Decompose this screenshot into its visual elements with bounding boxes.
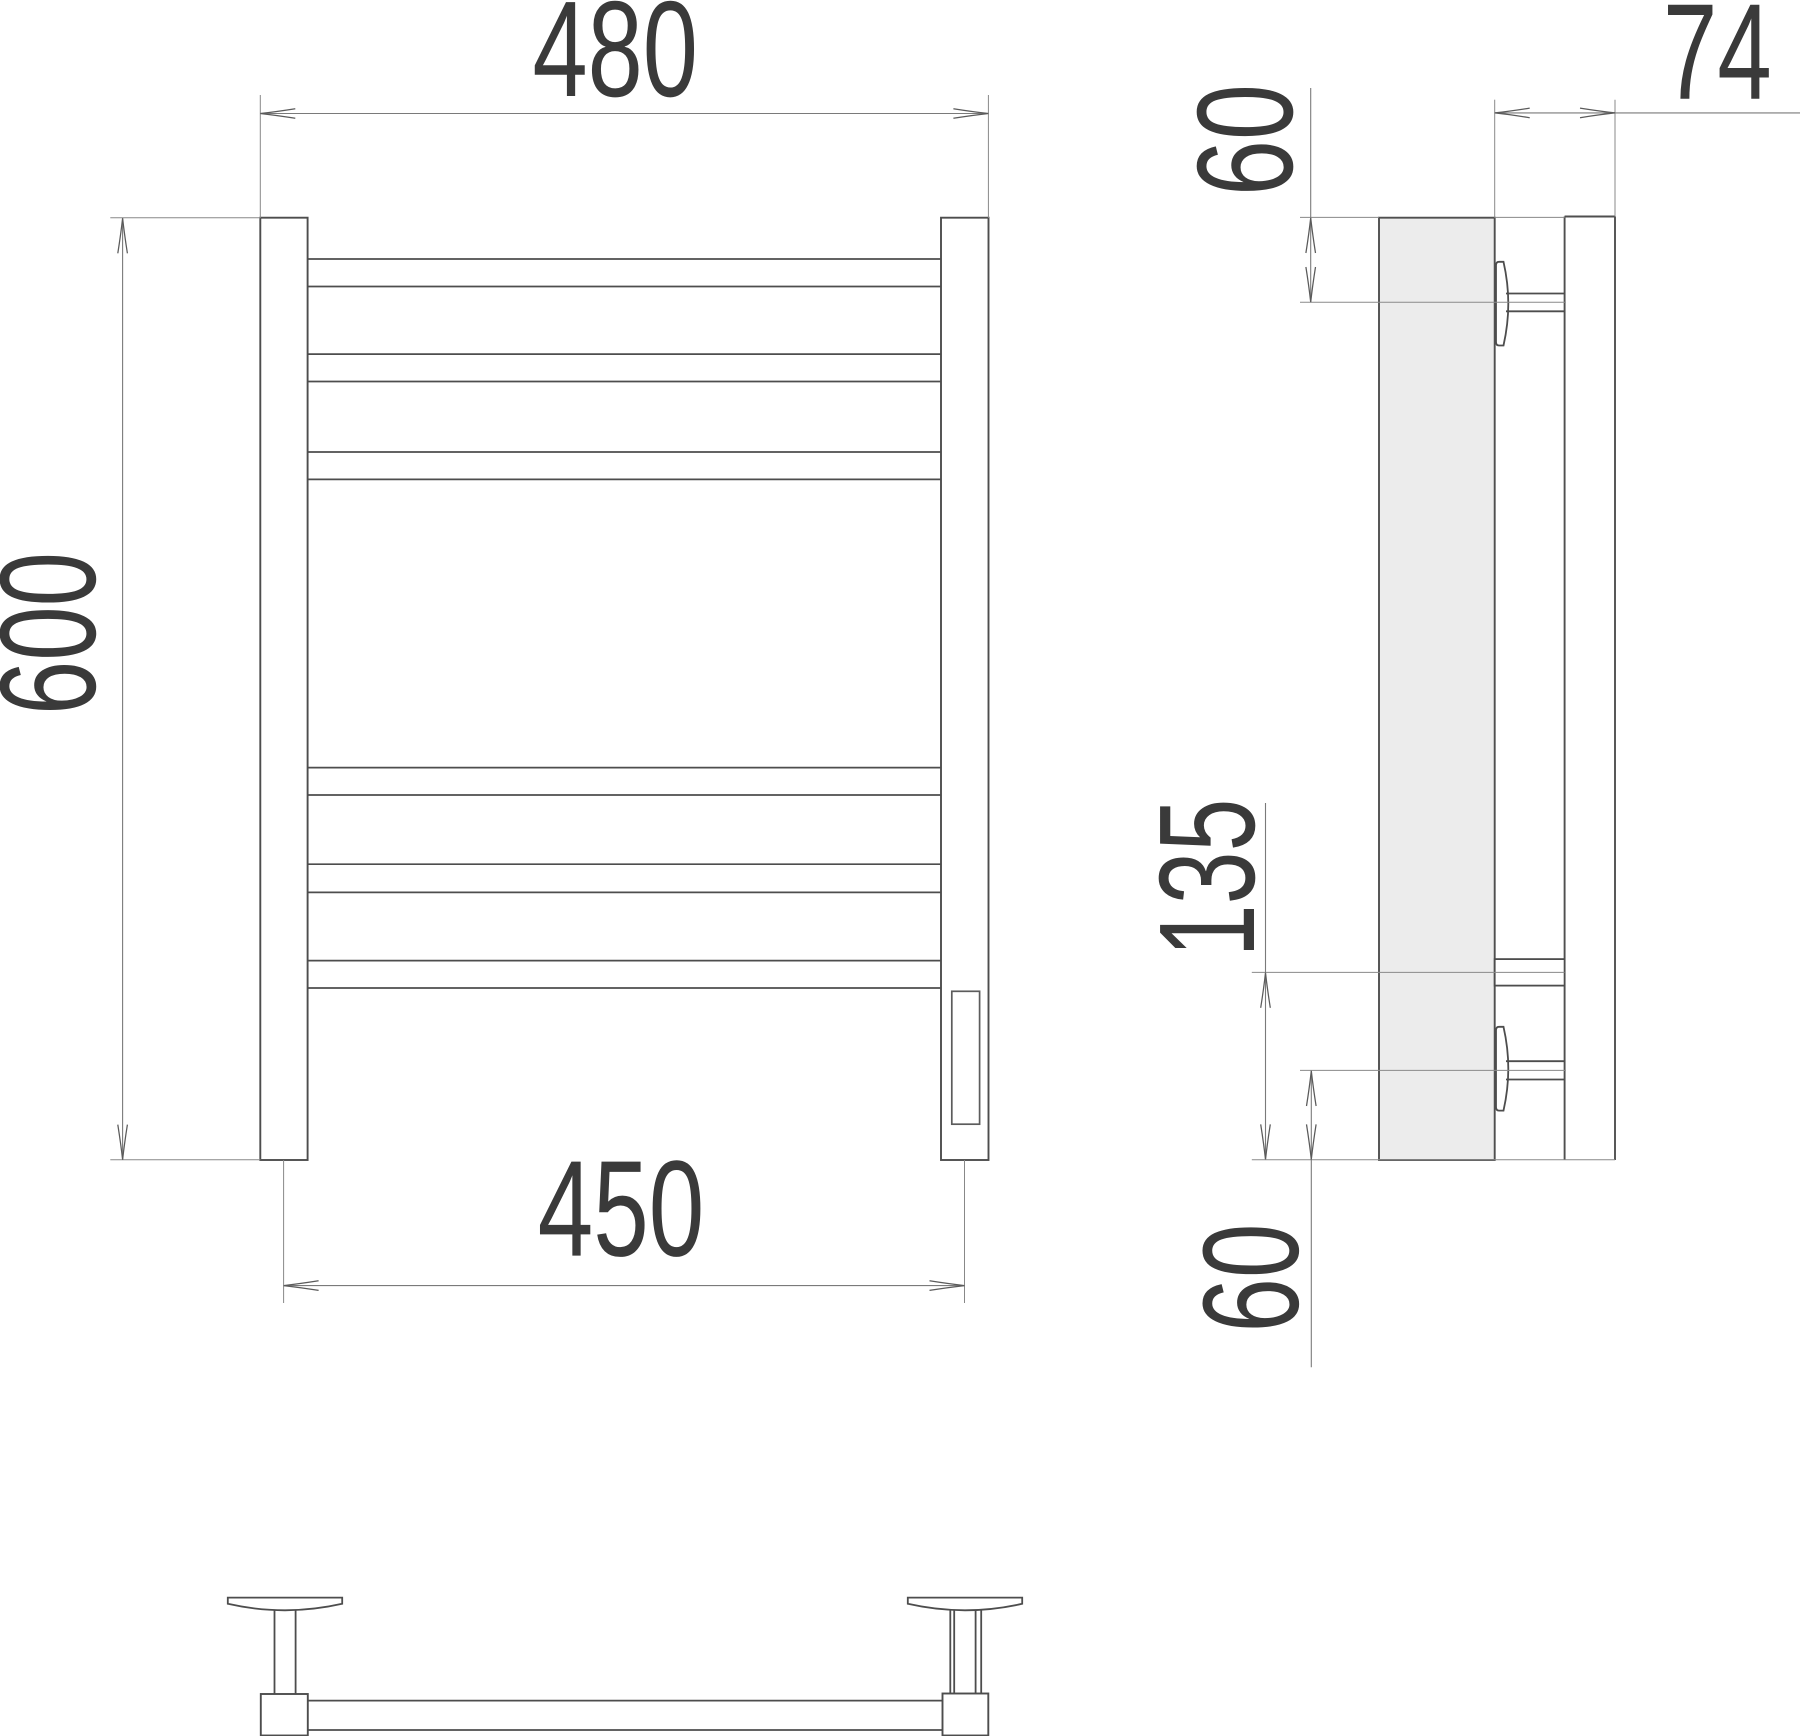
svg-text:74: 74	[1663, 0, 1772, 128]
svg-text:135: 135	[1130, 799, 1283, 958]
svg-text:480: 480	[533, 0, 698, 125]
svg-text:60: 60	[1168, 84, 1321, 196]
svg-text:450: 450	[538, 1132, 705, 1285]
svg-text:60: 60	[1174, 1224, 1327, 1333]
svg-text:600: 600	[0, 552, 124, 715]
